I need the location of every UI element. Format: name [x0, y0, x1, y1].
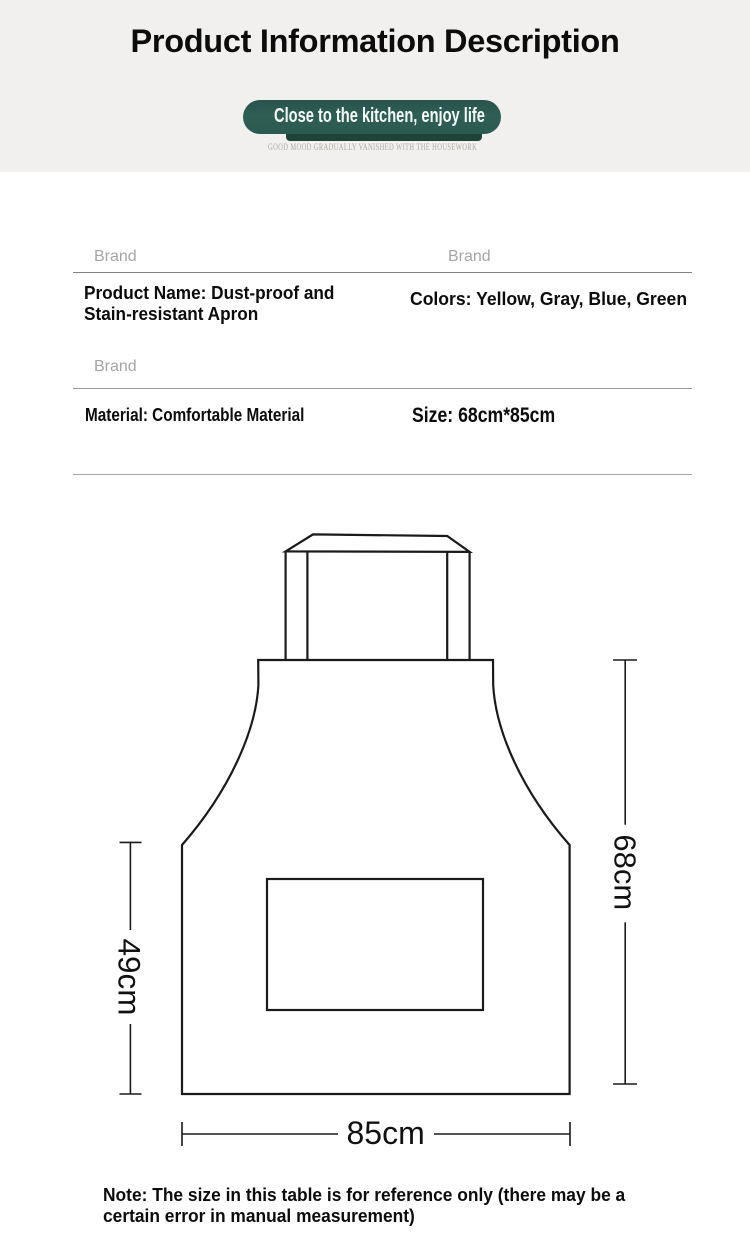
svg-text:85cm: 85cm — [347, 1115, 425, 1151]
svg-text:68cm: 68cm — [608, 834, 643, 910]
svg-text:49cm: 49cm — [112, 939, 148, 1016]
